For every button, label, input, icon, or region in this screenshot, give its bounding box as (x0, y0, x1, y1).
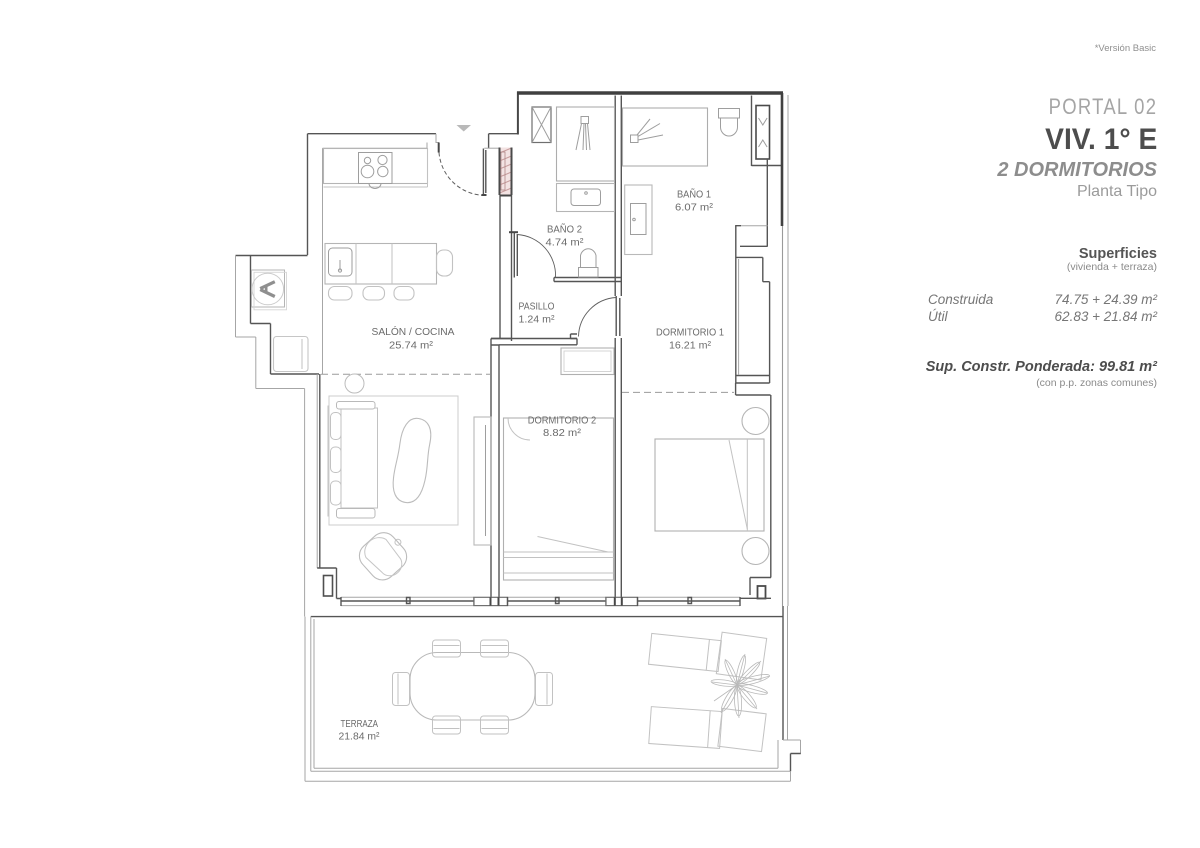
svg-text:DORMITORIO 1: DORMITORIO 1 (656, 327, 724, 339)
svg-text:PASILLO: PASILLO (519, 301, 555, 313)
svg-text:1.24 m²: 1.24 m² (519, 315, 556, 326)
svg-text:TERRAZA: TERRAZA (341, 718, 379, 730)
svg-text:25.74 m²: 25.74 m² (389, 341, 434, 352)
svg-text:BAÑO 2: BAÑO 2 (547, 223, 582, 236)
svg-text:8.82 m²: 8.82 m² (543, 428, 582, 439)
svg-text:6.07 m²: 6.07 m² (675, 203, 714, 214)
svg-text:16.21 m²: 16.21 m² (669, 341, 712, 352)
svg-text:BAÑO 1: BAÑO 1 (677, 188, 711, 201)
svg-text:DORMITORIO 2: DORMITORIO 2 (528, 415, 597, 427)
svg-text:4.74 m²: 4.74 m² (546, 238, 585, 249)
svg-text:21.84 m²: 21.84 m² (339, 732, 381, 743)
svg-text:SALÓN / COCINA: SALÓN / COCINA (372, 325, 455, 338)
